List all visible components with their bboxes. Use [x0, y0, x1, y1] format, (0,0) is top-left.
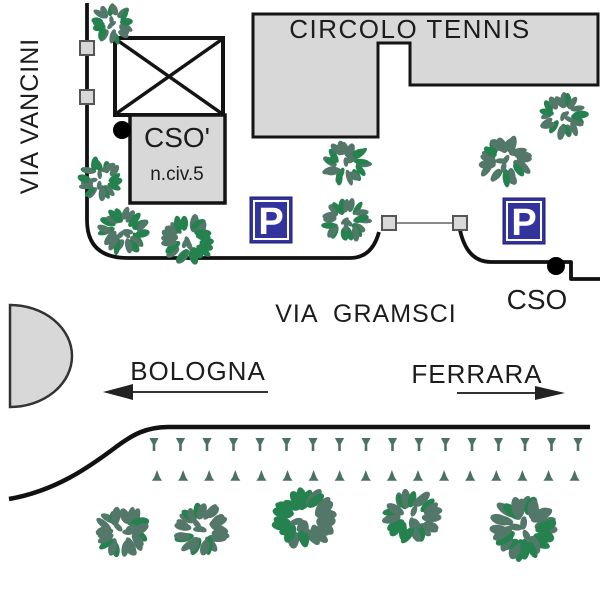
parking-sign-letter: P	[258, 201, 283, 243]
roundabout-edge	[10, 305, 72, 407]
parking-sign-west: P	[250, 197, 292, 243]
hedge-marker-bottom	[491, 470, 501, 481]
label-via-gramsci: VIA GRAMSCI	[275, 300, 456, 328]
vancini-post-upper	[80, 41, 94, 55]
bush	[271, 486, 336, 549]
label-ferrara: FERRARA	[411, 359, 542, 389]
hedge-marker-top	[282, 438, 291, 451]
street-map: P P VIA VANCINI CIRCOLO TENNIS CSO' n.ci…	[0, 0, 600, 600]
hedge-marker-bottom	[517, 470, 527, 481]
label-cso-building: CSO'	[144, 122, 210, 153]
bush	[489, 494, 558, 562]
hedge-marker-top	[176, 438, 185, 451]
bush	[76, 156, 123, 201]
bush	[321, 140, 372, 186]
hedge-marker-bottom	[309, 470, 319, 481]
hedge-marker-top	[573, 438, 582, 451]
hedge-marker-bottom	[178, 470, 188, 481]
hedge-layer	[149, 438, 582, 481]
bush	[321, 197, 372, 241]
hedge-marker-bottom	[413, 470, 423, 481]
hedge-marker-bottom	[152, 470, 162, 481]
gate-post-right	[453, 216, 467, 230]
hedge-marker-top	[494, 438, 503, 451]
hedge-marker-top	[361, 438, 370, 451]
hedge-marker-top	[547, 438, 556, 451]
hedge-marker-bottom	[282, 470, 292, 481]
label-circolo-tennis: CIRCOLO TENNIS	[289, 14, 531, 44]
hedge-marker-top	[467, 438, 476, 451]
bologna-arrow	[103, 384, 268, 400]
map-canvas: P P VIA VANCINI CIRCOLO TENNIS CSO' n.ci…	[0, 0, 600, 600]
hedge-marker-top	[335, 438, 344, 451]
label-bologna: BOLOGNA	[130, 356, 266, 386]
label-cso-civic-number: n.civ.5	[150, 164, 204, 185]
bush	[539, 92, 589, 141]
hedge-marker-bottom	[439, 470, 449, 481]
vancini-post-lower	[80, 90, 94, 104]
hedge-marker-bottom	[387, 470, 397, 481]
hedge-marker-bottom	[335, 470, 345, 481]
label-cso-entrance: CSO	[507, 284, 568, 315]
bush	[174, 502, 230, 557]
hedge-marker-bottom	[230, 470, 240, 481]
hedge-marker-bottom	[570, 470, 580, 481]
arrow-left-icon	[103, 384, 133, 400]
hedge-marker-bottom	[204, 470, 214, 481]
hedge-marker-bottom	[543, 470, 553, 481]
hedge-marker-top	[520, 438, 529, 451]
hedge-marker-top	[202, 438, 211, 451]
hedge-marker-top	[441, 438, 450, 451]
hedge-marker-top	[388, 438, 397, 451]
bush	[381, 488, 443, 545]
hedge-marker-top	[229, 438, 238, 451]
bush	[96, 206, 151, 256]
entrance-dot-cso	[547, 257, 565, 275]
parking-sign-letter: P	[511, 202, 536, 244]
bush	[479, 135, 533, 188]
hedge-marker-top	[255, 438, 264, 451]
parking-sign-east: P	[503, 198, 545, 244]
label-via-vancini: VIA VANCINI	[16, 38, 44, 194]
hedge-marker-top	[149, 438, 158, 451]
bush	[95, 506, 151, 558]
entrance-dot-cso-prime	[113, 121, 131, 139]
hedge-marker-bottom	[465, 470, 475, 481]
hedge-marker-top	[414, 438, 423, 451]
gate-post-left	[382, 216, 396, 230]
hedge-marker-top	[308, 438, 317, 451]
hedge-marker-bottom	[256, 470, 266, 481]
hedge-marker-bottom	[361, 470, 371, 481]
